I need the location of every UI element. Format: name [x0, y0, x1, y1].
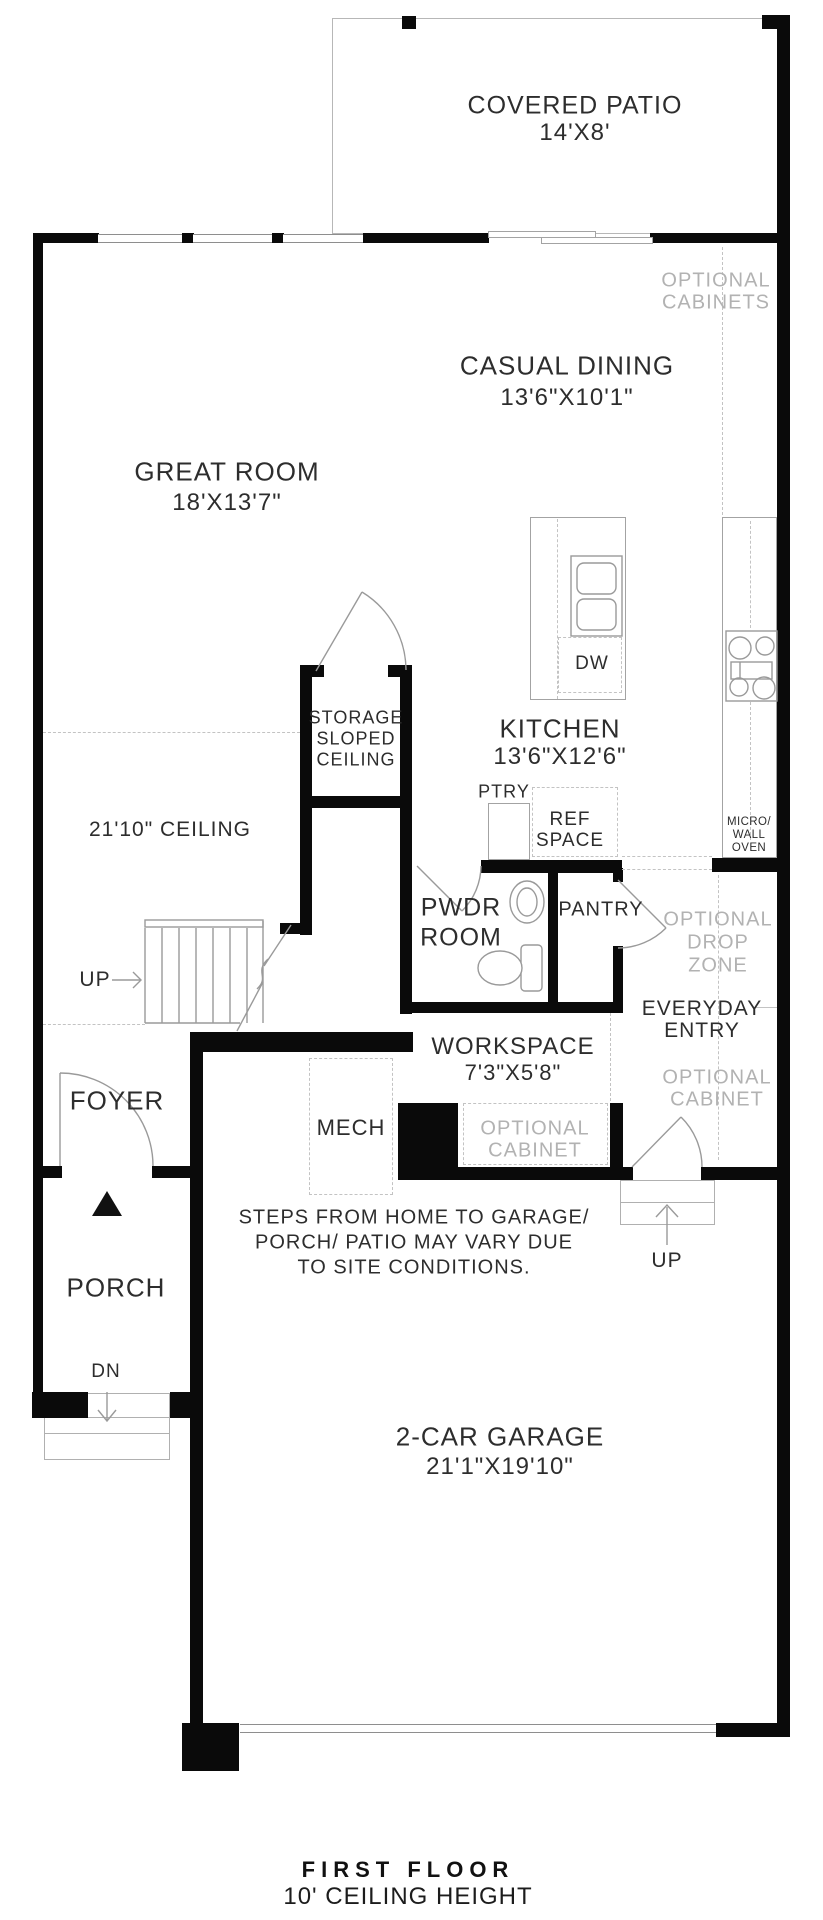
ptry-label: PTRY [478, 782, 530, 803]
optional-cabinet-entry-label: CABINET [670, 1089, 764, 1112]
window [283, 234, 363, 243]
stairs-up-arrow [112, 972, 141, 988]
dashed-workspace-line [610, 1013, 611, 1101]
pedestal-sink [510, 881, 544, 923]
wall [152, 1166, 203, 1178]
plan-title: FIRST FLOOR [302, 1857, 515, 1883]
room-dims-covered-patio: 14'X8' [539, 119, 610, 147]
stair-break-line [237, 925, 291, 1031]
room-label-pantry: PANTRY [558, 899, 643, 922]
wall [712, 858, 778, 872]
ref-space-label: SPACE [536, 830, 604, 852]
room-label-everyday-entry: EVERYDAY [642, 997, 762, 1021]
floor-plan: COVERED PATIO 14'X8' OPTIONAL CABINETS C… [0, 0, 823, 1920]
room-label-covered-patio: COVERED PATIO [468, 92, 683, 121]
entry-direction-triangle [92, 1191, 122, 1216]
optional-cabinet-workspace-label: OPTIONAL [480, 1118, 589, 1141]
room-label-storage: CEILING [316, 750, 395, 771]
room-label-workspace: WORKSPACE [431, 1033, 594, 1061]
ptry-cabinet [488, 803, 530, 860]
dishwasher-label: DW [575, 653, 609, 675]
wall [300, 796, 412, 808]
wall [33, 233, 43, 1392]
wall [182, 1723, 239, 1771]
dashed-drop-zone-line [622, 869, 712, 870]
wall [170, 1392, 203, 1418]
room-label-pwdr: ROOM [420, 924, 502, 953]
entry-step-line [620, 1202, 715, 1203]
wall [398, 1103, 458, 1180]
staircase [145, 920, 263, 1023]
wall [190, 1032, 413, 1052]
optional-drop-zone-label: ZONE [688, 955, 748, 978]
room-label-porch: PORCH [67, 1273, 166, 1304]
room-dims-kitchen: 13'6"X12'6" [493, 743, 626, 771]
wall [400, 1002, 623, 1013]
room-dims-garage: 21'1"X19'10" [426, 1453, 574, 1481]
room-label-kitchen: KITCHEN [499, 714, 620, 745]
room-dims-great-room: 18'X13'7" [172, 489, 281, 517]
ceiling-note: 21'10" CEILING [89, 818, 251, 842]
dashed-ceiling-break [43, 732, 300, 733]
room-dims-casual-dining: 13'6"X10'1" [500, 384, 633, 412]
room-label-pwdr: PWDR [421, 894, 501, 923]
dashed-drop-zone-line [622, 856, 712, 857]
porch-step-line [44, 1433, 170, 1434]
dashed-ceiling-break [43, 1024, 145, 1025]
room-label-storage: STORAGE [309, 708, 404, 729]
site-note: TO SITE CONDITIONS. [297, 1257, 530, 1280]
entry-up-label: UP [651, 1249, 682, 1273]
wall [610, 1103, 623, 1167]
optional-drop-zone-label: OPTIONAL [663, 909, 772, 932]
ref-space-label: REF [550, 809, 591, 831]
wall [300, 665, 324, 677]
optional-drop-zone-label: DROP [687, 932, 749, 955]
site-note: STEPS FROM HOME TO GARAGE/ [239, 1207, 590, 1230]
room-dims-workspace: 7'3"X5'8" [465, 1060, 562, 1086]
wall [613, 868, 623, 882]
wall [777, 15, 790, 235]
room-label-garage: 2-CAR GARAGE [396, 1422, 605, 1453]
wall [363, 233, 489, 243]
everyday-entry-door [632, 1117, 702, 1167]
optional-cabinet-workspace-label: CABINET [488, 1140, 582, 1163]
wall [701, 1167, 790, 1180]
room-label-casual-dining: CASUAL DINING [460, 351, 674, 382]
optional-cabinets-label: CABINETS [662, 292, 770, 315]
storage-door [316, 592, 406, 671]
micro-wall-oven-label: OVEN [732, 842, 766, 854]
porch-dn-label: DN [91, 1361, 120, 1383]
micro-wall-oven-label: MICRO/ [727, 816, 771, 828]
room-label-mech: MECH [317, 1115, 386, 1141]
sliding-door [541, 237, 653, 244]
room-label-foyer: FOYER [70, 1086, 165, 1117]
site-note: PORCH/ PATIO MAY VARY DUE [255, 1232, 573, 1255]
room-label-great-room: GREAT ROOM [134, 457, 319, 488]
window [98, 234, 182, 243]
wall [777, 233, 790, 1737]
wall [402, 16, 416, 29]
wall [33, 1166, 62, 1178]
micro-wall-oven-label: WALL [733, 829, 766, 841]
window [193, 234, 272, 243]
wall [280, 923, 312, 934]
wall [716, 1723, 778, 1737]
garage-door [240, 1724, 716, 1733]
wall [388, 665, 412, 677]
wall [32, 1392, 88, 1418]
optional-cabinet-entry-label: OPTIONAL [662, 1067, 771, 1090]
dashed-counter-line [750, 521, 751, 628]
wall [457, 1167, 633, 1180]
wall [762, 15, 790, 29]
wall [650, 233, 790, 243]
room-label-everyday-entry: ENTRY [664, 1019, 740, 1043]
room-label-storage: SLOPED [316, 729, 395, 750]
plan-subtitle: 10' CEILING HEIGHT [283, 1883, 532, 1911]
optional-cabinets-label: OPTIONAL [661, 270, 770, 293]
stairs-up-label: UP [79, 968, 110, 992]
wall [548, 860, 558, 1013]
